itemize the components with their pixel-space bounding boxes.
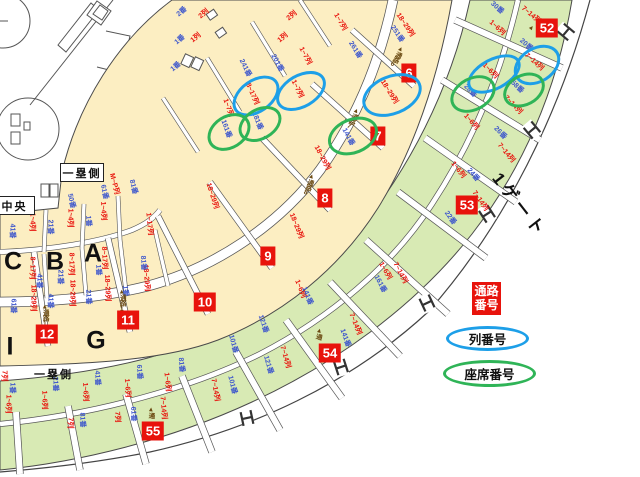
seat-number-label: 21番: [47, 220, 54, 235]
first-base-side-label-upper: 一塁側: [60, 163, 104, 182]
seat-number-label: 61番: [129, 406, 137, 421]
seat-number-label: 141番: [300, 286, 313, 306]
row-range-label: 1~4列: [99, 201, 107, 220]
row-range-label: 1~6列: [488, 19, 507, 37]
row-range-label: 8~17列: [68, 253, 75, 276]
row-range-label: 1~6列: [81, 382, 89, 401]
row-range-label: 1~6列: [449, 160, 466, 179]
seat-number-label: 24番: [466, 167, 481, 183]
stadium-seat-map: 1~4列1~4列1~4列8~17列8~17列8~17列18~29列18~29列1…: [0, 0, 640, 477]
row-range-label: 7~14列: [278, 345, 291, 369]
aisle-marker: ▲通: [313, 327, 322, 340]
seat-number-label: 121番: [257, 314, 269, 334]
legend-seat-number-text: 座席番号: [464, 364, 514, 383]
row-range-label: 18~29列: [205, 182, 220, 210]
legend-seat-number-oval: 座席番号: [443, 360, 536, 387]
seat-number-label: 61番: [135, 364, 143, 379]
section-letter: A: [84, 242, 102, 267]
row-range-label: 1~7列: [297, 46, 312, 66]
seat-number-label: 261番: [347, 40, 363, 60]
section-letter: C: [4, 250, 22, 275]
legend-row-number-oval: 列番号: [446, 326, 529, 351]
row-range-label: 1~6列: [163, 372, 172, 392]
row-range-label: 8~17列: [29, 257, 36, 280]
row-range-label: 2列: [198, 8, 211, 20]
row-range-label: 18~29列: [103, 275, 111, 302]
seat-number-label: 41番: [9, 224, 16, 239]
seat-number-label: 21番: [84, 289, 92, 304]
row-range-label: 1~6列: [123, 378, 131, 397]
section-letter: B: [46, 250, 64, 275]
map-label-layer: 1~4列1~4列1~4列8~17列8~17列8~17列18~29列18~29列1…: [0, 0, 640, 477]
aisle-marker: ▲通路8: [301, 172, 315, 196]
aisle-number-badge: 10: [194, 293, 216, 312]
aisle-number-badge: 9: [260, 247, 275, 266]
section-letter: G: [86, 329, 105, 354]
seat-number-label: 26番: [492, 125, 507, 141]
row-range-label: 1列: [277, 32, 290, 44]
seat-number-label: 81番: [128, 179, 138, 195]
aisle-number-badge: 8: [317, 189, 332, 208]
row-range-label: 7列: [113, 411, 120, 422]
row-highlight-oval: [356, 65, 428, 125]
row-range-label: 1~6列: [462, 113, 480, 132]
section-letter: I: [7, 335, 14, 360]
seat-number-label: 241番: [238, 58, 252, 78]
seat-number-label: 41番: [36, 274, 43, 289]
aisle-marker: ▲通: [146, 406, 153, 418]
row-range-label: 7~14列: [392, 261, 409, 284]
seat-number-label: 81番: [139, 255, 147, 270]
first-base-side-label-lower: 一塁側: [34, 366, 73, 382]
row-range-label: 1~4列: [67, 209, 74, 228]
row-range-label: 1列: [190, 32, 203, 44]
row-range-label: 7列: [67, 418, 74, 429]
legend-aisle-number-badge: 通路番号: [472, 282, 501, 315]
seat-number-label: 1番: [84, 215, 91, 226]
row-range-label: 7~14列: [496, 142, 516, 164]
row-range-label: 18~29列: [313, 145, 332, 172]
row-range-label: 1~6列: [40, 391, 47, 410]
aisle-number-badge: 11: [117, 311, 139, 330]
row-range-label: 1~4列: [29, 213, 36, 232]
row-range-label: 1~6列: [5, 395, 12, 414]
row-range-label: 18~29列: [288, 212, 304, 239]
seat-number-label: 1番: [174, 34, 187, 46]
seat-number-label: 81番: [177, 357, 186, 372]
seat-number-label: 50番: [66, 193, 76, 209]
row-range-label: M~P列: [108, 173, 120, 196]
seat-number-label: 1番: [170, 61, 183, 73]
seat-number-label: 61番: [99, 184, 109, 200]
aisle-number-badge: 54: [319, 344, 341, 363]
seat-number-label: 2番: [176, 6, 189, 18]
seat-number-label: 81番: [78, 412, 86, 427]
seat-number-label: 61番: [10, 299, 17, 314]
row-range-label: 7列: [1, 371, 8, 382]
row-range-label: 1~7列: [332, 12, 347, 32]
seat-highlight-oval: [322, 110, 384, 163]
row-range-label: 18~29列: [69, 280, 76, 307]
seat-number-label: 121番: [262, 355, 274, 375]
row-range-label: 7~14列: [347, 312, 362, 336]
seat-number-label: 101番: [227, 334, 239, 354]
row-range-label: 7~14列: [210, 378, 221, 402]
seat-number-label: 201番: [270, 53, 285, 73]
seat-number-label: 41番: [93, 370, 101, 385]
row-range-label: 1~17列: [144, 212, 153, 235]
row-range-label: 18~29列: [30, 285, 37, 312]
legend-row-number-text: 列番号: [469, 329, 507, 348]
row-range-label: 7~14列: [159, 396, 168, 419]
seat-number-label: 101番: [226, 375, 237, 395]
row-range-label: 2列: [286, 10, 299, 22]
seat-number-label: 1番: [9, 383, 16, 394]
aisle-number-badge: 12: [36, 325, 58, 344]
center-label: 中央: [0, 196, 35, 215]
aisle-number-badge: 53: [456, 196, 478, 215]
aisle-marker: ▲: [527, 23, 536, 32]
aisle-number-badge: 52: [536, 19, 558, 38]
center-text: 中央: [2, 198, 28, 214]
first-base-side-text: 一塁側: [63, 165, 102, 181]
seat-number-label: 30番: [489, 0, 505, 15]
aisle-number-badge: 55: [142, 422, 164, 441]
